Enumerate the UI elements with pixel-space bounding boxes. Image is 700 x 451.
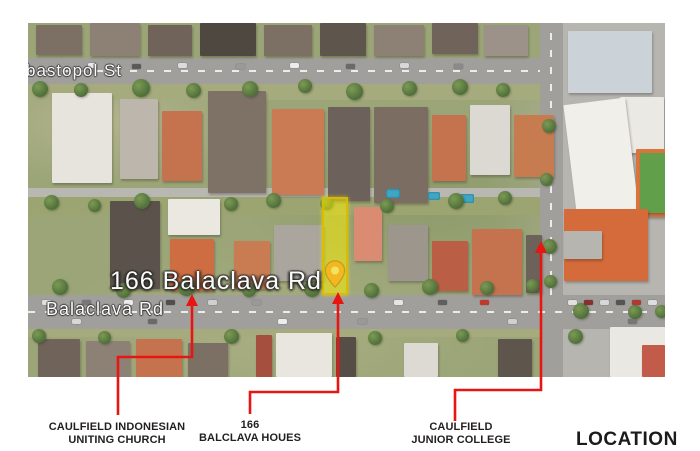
building: [328, 107, 370, 201]
building: [188, 343, 228, 377]
tree: [496, 83, 510, 97]
tree: [364, 283, 379, 298]
tree: [98, 331, 111, 344]
tree: [480, 281, 494, 295]
swimming-pool: [386, 189, 400, 198]
tree: [44, 195, 59, 210]
building: [36, 25, 82, 55]
building: [264, 25, 312, 56]
tree: [346, 83, 363, 100]
aerial-map: bastopol St 166 Balaclava Rd Balaclava R…: [28, 23, 665, 377]
building: [200, 23, 256, 56]
callout-line: BALCLAVA HOUES: [190, 432, 310, 445]
tree: [526, 279, 539, 292]
callout-caulfield-junior-college: CAULFIELD JUNIOR COLLEGE: [401, 421, 521, 446]
street-label-balaclava-rd: Balaclava Rd: [46, 299, 164, 320]
tree: [242, 81, 258, 97]
tree: [544, 275, 557, 288]
tree: [542, 119, 556, 133]
location-figure: bastopol St 166 Balaclava Rd Balaclava R…: [0, 0, 700, 450]
tree: [32, 329, 46, 343]
building: [120, 99, 158, 179]
tree: [266, 193, 281, 208]
car: [480, 300, 489, 305]
building: [470, 105, 510, 175]
tree: [448, 193, 464, 209]
building: [374, 107, 428, 203]
subject-site-highlight: [322, 197, 348, 295]
car: [600, 300, 609, 305]
figure-title: LOCATION: [576, 429, 678, 451]
tree: [568, 329, 583, 344]
building: [498, 339, 532, 377]
tree: [628, 305, 642, 319]
car: [132, 64, 141, 69]
car: [616, 300, 625, 305]
building: [640, 153, 665, 213]
tree: [134, 193, 150, 209]
car: [236, 64, 245, 69]
building: [354, 207, 382, 261]
building: [564, 231, 602, 259]
tree: [498, 191, 512, 205]
tree: [655, 305, 665, 318]
tree: [298, 79, 312, 93]
tree: [224, 329, 239, 344]
tree: [542, 239, 557, 254]
tree: [456, 329, 469, 342]
car: [648, 300, 657, 305]
building: [162, 111, 202, 181]
car: [508, 319, 517, 324]
building: [432, 23, 478, 54]
tree: [422, 279, 438, 295]
building: [320, 23, 366, 56]
car: [346, 64, 355, 69]
building: [52, 93, 112, 183]
building: [388, 225, 428, 281]
callout-line: 166: [190, 419, 310, 432]
building: [336, 337, 356, 377]
tree: [186, 83, 201, 98]
building: [404, 343, 438, 377]
callout-line: CAULFIELD INDONESIAN: [37, 421, 197, 434]
car: [278, 319, 287, 324]
tree: [88, 199, 101, 212]
callout-caulfield-indonesian-uniting-church: CAULFIELD INDONESIAN UNITING CHURCH: [37, 421, 197, 446]
car: [252, 300, 261, 305]
car: [400, 63, 409, 68]
tree: [368, 331, 382, 345]
building: [90, 23, 140, 56]
building: [38, 339, 80, 377]
callout-line: CAULFIELD: [401, 421, 521, 434]
tree: [74, 83, 88, 97]
street-label-sevastopol: bastopol St: [28, 61, 122, 81]
car: [358, 319, 367, 324]
building: [568, 31, 652, 93]
car: [632, 300, 641, 305]
car: [628, 319, 637, 324]
building: [86, 341, 130, 377]
map-pin-hole: [331, 266, 339, 274]
car: [438, 300, 447, 305]
tree: [52, 279, 68, 295]
building: [148, 25, 192, 56]
swimming-pool: [428, 192, 440, 200]
callout-166-balclava-houes: 166 BALCLAVA HOUES: [190, 419, 310, 444]
car: [208, 300, 217, 305]
building: [168, 199, 220, 235]
address-label-166-balaclava-rd: 166 Balaclava Rd: [110, 267, 322, 296]
tree: [224, 197, 238, 211]
tree: [32, 81, 48, 97]
car: [178, 63, 187, 68]
building: [256, 335, 272, 377]
tree: [132, 79, 150, 97]
callout-line: UNITING CHURCH: [37, 434, 197, 447]
tree: [540, 173, 553, 186]
car: [166, 300, 175, 305]
building: [484, 25, 528, 56]
building: [272, 109, 324, 195]
tree: [402, 81, 417, 96]
callout-line: JUNIOR COLLEGE: [401, 434, 521, 447]
building: [432, 115, 466, 181]
car: [394, 300, 403, 305]
building: [374, 25, 424, 56]
car: [584, 300, 593, 305]
tree: [573, 303, 589, 319]
tree: [380, 199, 394, 213]
car: [290, 63, 299, 68]
building: [642, 345, 665, 377]
building: [208, 91, 266, 193]
building: [276, 333, 332, 377]
building: [136, 339, 182, 377]
car: [454, 64, 463, 69]
map-pin-icon: [325, 260, 346, 288]
tree: [452, 79, 468, 95]
car: [568, 300, 577, 305]
